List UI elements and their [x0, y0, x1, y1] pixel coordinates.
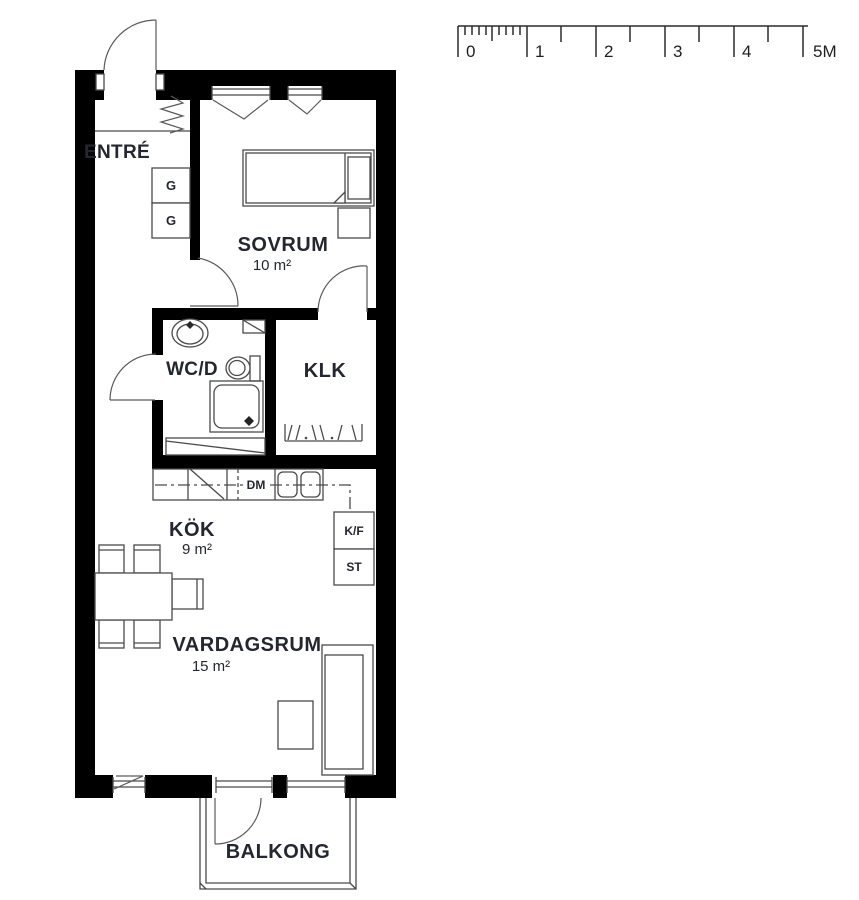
dishwasher-label: DM [247, 478, 266, 492]
wardrobe-bottom-label: G [166, 213, 176, 228]
vardagsrum-area: 15 m² [192, 658, 230, 675]
vardagsrum-room: VARDAGSRUM 15 m² [172, 634, 373, 775]
kok-area: 9 m² [182, 541, 212, 558]
stove-label: ST [346, 560, 362, 574]
dining-table [95, 545, 203, 648]
floor-plan-page: 0 1 2 3 4 5M [0, 0, 859, 900]
balkong-label: BALKONG [226, 841, 331, 863]
floor-plan-canvas: 0 1 2 3 4 5M [0, 0, 859, 900]
sofa [322, 645, 373, 775]
kitchen-counter: DM [153, 469, 350, 512]
wcd-room: WC/D [110, 319, 265, 455]
klk-room: KLK [285, 360, 362, 441]
sovrum-door [190, 258, 238, 306]
nightstand [338, 208, 370, 238]
entry-door [96, 20, 164, 90]
kok-label: KÖK [169, 518, 215, 541]
scale-bar: 0 1 2 3 4 5M [458, 26, 837, 61]
entre-label: ENTRÉ [84, 141, 150, 163]
hat-rack-symbol [161, 96, 183, 133]
sovrum-label: SOVRUM [238, 234, 329, 256]
vardagsrum-label: VARDAGSRUM [172, 634, 321, 656]
klk-label: KLK [304, 360, 347, 382]
fridge-freezer-label: K/F [344, 524, 363, 538]
shower [210, 381, 263, 432]
wcd-label: WC/D [166, 359, 218, 380]
vent-shaft [243, 320, 265, 333]
balcony-door [215, 798, 261, 844]
wcd-door [110, 354, 156, 400]
bedroom-windows [212, 86, 322, 119]
toilet [226, 356, 260, 381]
sovrum-room: SOVRUM 10 m² [190, 150, 374, 312]
scale-2: 2 [604, 42, 613, 61]
klk-door [318, 266, 367, 312]
wardrobe-top-label: G [166, 178, 176, 193]
coffee-table [278, 701, 313, 749]
scale-0: 0 [466, 42, 475, 61]
entre-room: ENTRÉ G G [84, 96, 190, 238]
wcd-bench [166, 438, 265, 455]
scale-5m: 5M [813, 42, 837, 61]
scale-1: 1 [535, 42, 544, 61]
washbasin [172, 319, 208, 347]
bed [243, 150, 374, 206]
balkong: BALKONG [200, 798, 356, 889]
sovrum-area: 10 m² [253, 257, 291, 274]
scale-4: 4 [742, 42, 751, 61]
kok-room: DM K/F ST KÖK 9 m² [95, 469, 374, 648]
scale-3: 3 [673, 42, 682, 61]
clothes-rail [285, 424, 362, 441]
